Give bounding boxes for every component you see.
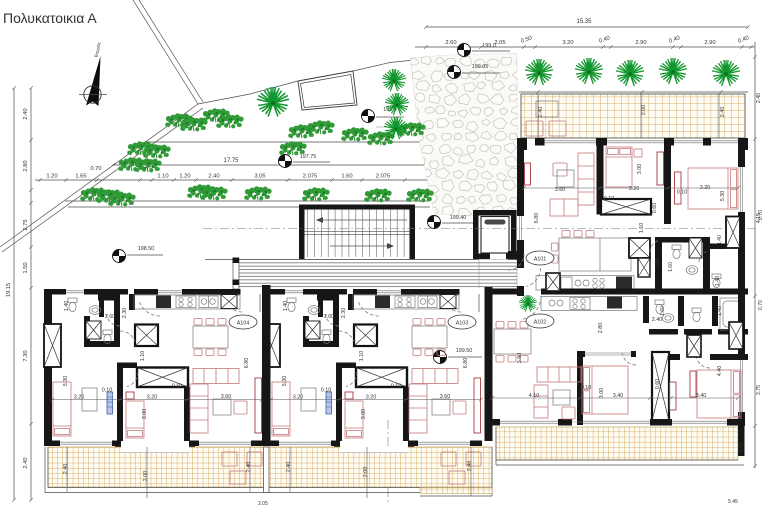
svg-text:1.60: 1.60 — [341, 174, 352, 180]
svg-text:1.10: 1.10 — [359, 351, 365, 362]
svg-text:1.40: 1.40 — [715, 276, 721, 287]
svg-text:5.30: 5.30 — [282, 376, 288, 387]
svg-text:3.00: 3.00 — [599, 388, 605, 399]
svg-text:2.80: 2.80 — [598, 323, 604, 334]
svg-text:2.00: 2.00 — [143, 471, 149, 482]
svg-text:2.60: 2.60 — [445, 40, 456, 46]
svg-text:3.60: 3.60 — [221, 394, 232, 400]
svg-text:0.10: 0.10 — [102, 388, 113, 394]
svg-text:2.60: 2.60 — [105, 314, 115, 320]
svg-text:2.60: 2.60 — [324, 314, 334, 320]
svg-text:199.40: 199.40 — [450, 215, 467, 221]
svg-text:6.80: 6.80 — [534, 213, 540, 224]
svg-text:7.30: 7.30 — [23, 350, 29, 361]
svg-text:0.70: 0.70 — [758, 210, 764, 220]
svg-text:3.20: 3.20 — [629, 186, 640, 192]
svg-text:3.60: 3.60 — [440, 394, 451, 400]
svg-text:6.80: 6.80 — [463, 358, 469, 369]
svg-text:A103: A103 — [456, 321, 469, 327]
svg-text:3.00: 3.00 — [142, 409, 148, 420]
svg-text:5.30: 5.30 — [63, 376, 69, 387]
svg-text:2.40: 2.40 — [538, 107, 544, 118]
svg-text:2.40: 2.40 — [467, 461, 473, 472]
svg-text:1.20: 1.20 — [179, 174, 190, 180]
svg-text:2.40: 2.40 — [652, 317, 663, 323]
svg-text:3.20: 3.20 — [562, 40, 573, 46]
svg-text:2.30: 2.30 — [341, 308, 347, 319]
svg-text:199.0: 199.0 — [482, 43, 496, 49]
svg-text:2.30: 2.30 — [122, 308, 128, 319]
svg-text:2.90: 2.90 — [704, 40, 715, 46]
svg-text:2.75: 2.75 — [23, 219, 29, 230]
svg-text:0.10: 0.10 — [321, 388, 332, 394]
svg-text:0.60: 0.60 — [652, 203, 658, 214]
svg-text:197.75: 197.75 — [300, 154, 317, 160]
svg-text:5.90: 5.90 — [517, 353, 523, 364]
svg-text:3.75: 3.75 — [756, 385, 762, 395]
svg-text:2.40: 2.40 — [246, 462, 252, 473]
svg-text:2.40: 2.40 — [23, 108, 29, 119]
svg-text:3.00: 3.00 — [637, 164, 643, 175]
svg-text:199.50: 199.50 — [456, 348, 473, 354]
svg-text:5.30: 5.30 — [720, 191, 726, 202]
svg-text:6.80: 6.80 — [244, 358, 250, 369]
svg-text:2.05: 2.05 — [258, 501, 268, 507]
svg-text:1.10: 1.10 — [140, 351, 146, 362]
svg-text:A101: A101 — [534, 257, 547, 263]
svg-text:2.00: 2.00 — [641, 105, 647, 116]
svg-text:1.40: 1.40 — [717, 306, 723, 316]
svg-text:Πολυκατοικια Α: Πολυκατοικια Α — [3, 10, 97, 26]
svg-text:1.65: 1.65 — [75, 174, 86, 180]
svg-text:A102: A102 — [534, 320, 547, 326]
svg-text:1.60: 1.60 — [660, 306, 666, 316]
svg-text:3.00: 3.00 — [361, 409, 367, 420]
svg-text:4.40: 4.40 — [717, 366, 723, 377]
svg-text:2.90: 2.90 — [635, 40, 646, 46]
svg-text:2.075: 2.075 — [303, 174, 318, 180]
svg-text:5.45: 5.45 — [728, 499, 738, 505]
svg-text:1.10: 1.10 — [639, 223, 645, 234]
svg-text:1.20: 1.20 — [46, 174, 57, 180]
svg-text:2.00: 2.00 — [655, 258, 661, 269]
svg-text:2.40: 2.40 — [208, 174, 219, 180]
svg-text:2.075: 2.075 — [376, 174, 391, 180]
svg-text:199.05: 199.05 — [472, 64, 489, 70]
svg-text:2.40: 2.40 — [286, 462, 292, 473]
svg-text:1.40: 1.40 — [64, 301, 70, 312]
svg-text:198.50: 198.50 — [138, 246, 155, 252]
svg-text:2.40: 2.40 — [720, 107, 726, 118]
svg-text:0.70: 0.70 — [90, 166, 101, 172]
svg-text:0.70: 0.70 — [758, 300, 764, 310]
svg-text:2.40: 2.40 — [23, 457, 29, 468]
svg-text:1.60: 1.60 — [668, 262, 674, 272]
svg-text:3.05: 3.05 — [254, 174, 265, 180]
svg-text:17.75: 17.75 — [223, 158, 239, 164]
svg-text:2.40: 2.40 — [63, 464, 69, 475]
svg-text:15.35: 15.35 — [576, 19, 592, 25]
svg-text:1.10: 1.10 — [157, 174, 168, 180]
svg-text:2.80: 2.80 — [23, 160, 29, 171]
svg-text:0.10: 0.10 — [604, 196, 615, 202]
svg-text:0.60: 0.60 — [655, 379, 661, 390]
svg-text:A104: A104 — [237, 321, 250, 327]
svg-text:0.10: 0.10 — [172, 384, 183, 390]
svg-text:2.05: 2.05 — [494, 40, 505, 46]
svg-text:1.40: 1.40 — [283, 301, 289, 312]
svg-text:0.10: 0.10 — [677, 190, 688, 196]
svg-text:1.40: 1.40 — [717, 235, 723, 245]
svg-text:2.40: 2.40 — [756, 93, 762, 103]
svg-text:0.10: 0.10 — [391, 384, 402, 390]
svg-text:0.10: 0.10 — [581, 385, 592, 391]
svg-text:19.15: 19.15 — [6, 283, 12, 298]
svg-text:2.00: 2.00 — [363, 467, 369, 478]
svg-text:2.40: 2.40 — [738, 443, 744, 453]
svg-text:1.50: 1.50 — [23, 262, 29, 273]
